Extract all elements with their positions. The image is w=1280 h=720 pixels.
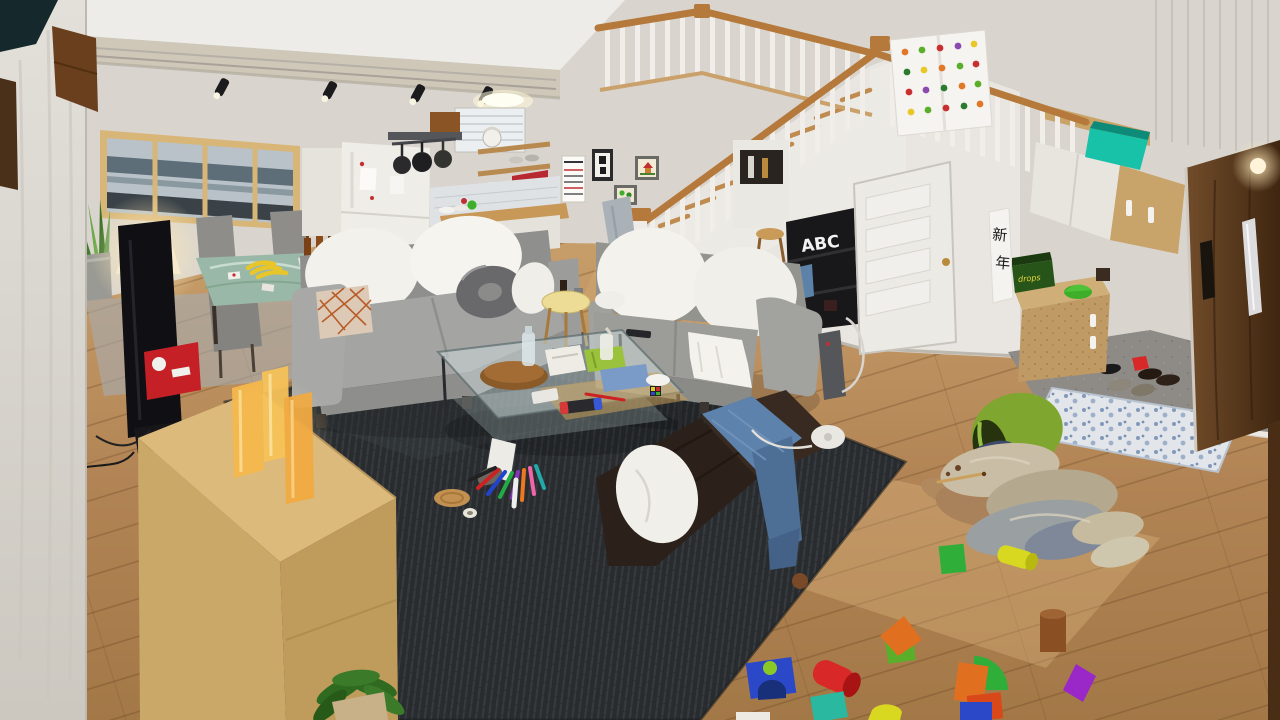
front-door <box>1186 140 1280 452</box>
door-side-panel <box>1268 420 1280 720</box>
white-block <box>736 712 770 720</box>
living-room-render: ABC 新 年 <box>0 0 1280 720</box>
framed-calligraphy <box>592 149 613 181</box>
green-ball-toy <box>763 661 777 675</box>
kids-drawing-house <box>635 156 659 180</box>
green-ball <box>467 200 476 209</box>
green-cube <box>939 544 967 574</box>
cabinet-handle <box>1126 200 1132 216</box>
kitchen-side-wall <box>302 148 344 236</box>
entry-lamp <box>1250 158 1266 174</box>
toy-on-shelf <box>824 300 837 311</box>
patterned-pillow <box>316 285 373 339</box>
left-wall-pillar <box>0 0 98 720</box>
brown-ball <box>792 573 808 589</box>
newel-cap-right <box>870 36 890 51</box>
fridge-magnet <box>360 162 364 166</box>
blue-cube <box>960 702 992 720</box>
under-stair-door <box>854 162 956 354</box>
dark-trim <box>0 78 18 190</box>
wall-calendar <box>562 156 585 202</box>
ceiling-lamp <box>482 93 524 107</box>
blue-arch-block <box>746 657 797 700</box>
rubiks-cube <box>650 386 661 396</box>
small-box <box>1096 268 1110 281</box>
door-knob <box>942 258 950 266</box>
fridge-note <box>359 168 376 191</box>
scene-canvas: ABC 新 年 <box>0 0 1280 720</box>
display-bottle <box>748 156 754 178</box>
drops-candy-box: drops <box>1012 252 1055 293</box>
brown-cylinder <box>1040 609 1066 652</box>
white-bowl <box>646 374 670 386</box>
new-year-scroll: 新 年 <box>989 208 1013 303</box>
armrest-pillow <box>595 291 625 309</box>
console-box <box>144 342 201 400</box>
newel-cap-top <box>694 4 710 18</box>
sofa2-arm-right <box>756 297 822 396</box>
scroll-char-top: 新 <box>992 225 1009 244</box>
scroll-char-bottom: 年 <box>994 254 1011 273</box>
vegetable-tapestry <box>890 30 992 136</box>
cork-coaster <box>434 489 470 507</box>
